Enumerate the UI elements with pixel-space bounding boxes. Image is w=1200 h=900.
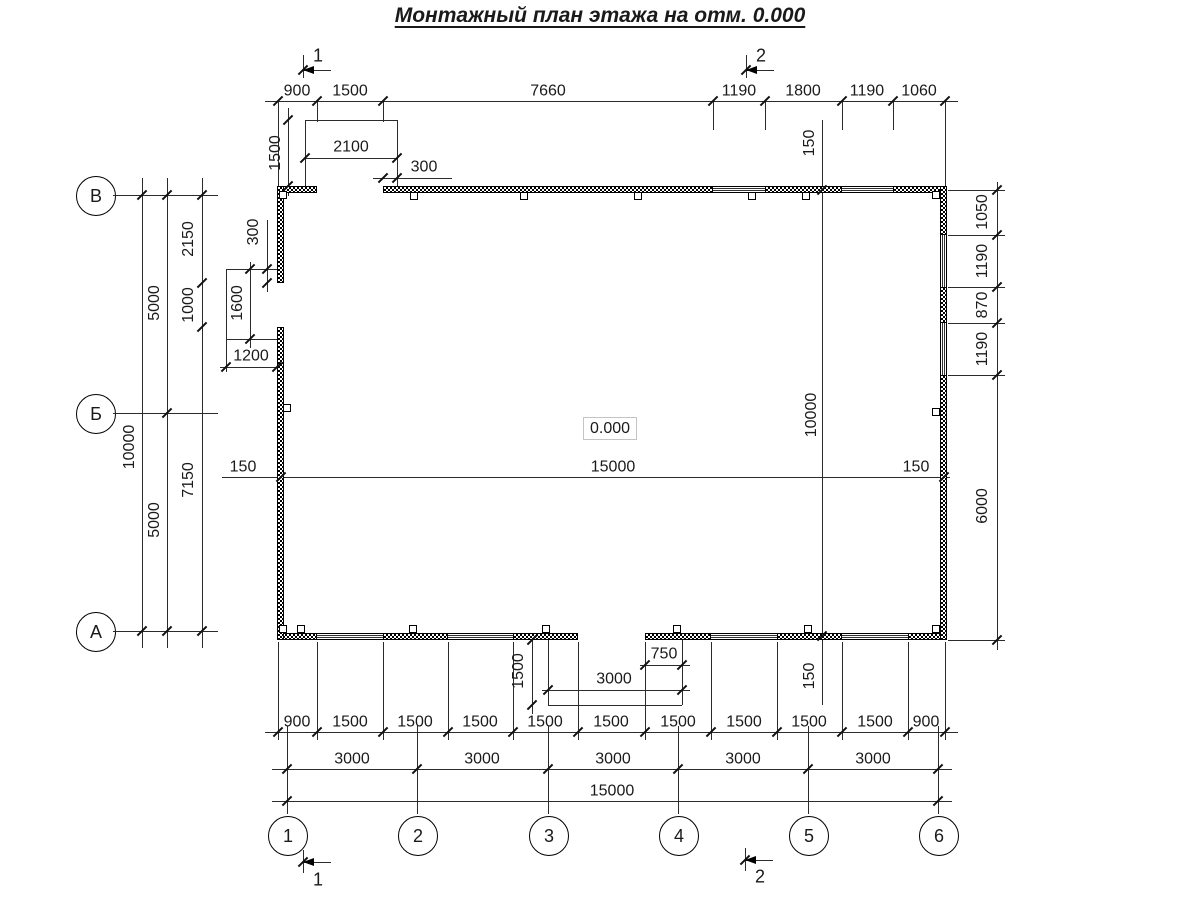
drawing-line — [945, 101, 946, 186]
window-segment — [940, 323, 947, 375]
dimension-label: 1200 — [233, 347, 269, 365]
section-arrow-icon — [303, 858, 314, 866]
dimension-label: 1190 — [850, 82, 884, 100]
drawing-line — [317, 101, 318, 122]
dimension-label: 3000 — [596, 670, 632, 688]
column-marker — [283, 404, 291, 412]
section-arrow-icon — [746, 66, 757, 74]
drawing-line — [822, 120, 823, 705]
dimension-label: 1500 — [857, 713, 893, 731]
axis-col-6: 6 — [919, 816, 959, 856]
axis-row-1-label: В — [90, 186, 102, 207]
elevation-box: 0.000 — [583, 417, 637, 440]
dimension-label: 1500 — [267, 135, 285, 171]
drawing-line — [272, 769, 952, 770]
dimension-label: 1190 — [974, 244, 992, 278]
drawing-line — [226, 269, 227, 339]
column-marker — [279, 191, 287, 199]
column-marker — [932, 191, 940, 199]
drawing-line — [202, 178, 203, 648]
dimension-label: 1000 — [180, 287, 198, 323]
column-marker — [520, 192, 528, 200]
dimension-label: 900 — [284, 82, 311, 100]
axis-row-3-label: А — [90, 622, 102, 643]
dimension-label: 300 — [245, 219, 263, 246]
column-marker — [297, 625, 305, 633]
wall-segment — [277, 186, 284, 283]
dimension-label: 1190 — [722, 82, 756, 100]
wall-segment — [777, 633, 842, 640]
column-marker — [673, 625, 681, 633]
drawing-line — [893, 101, 894, 130]
column-marker — [279, 625, 287, 633]
wall-segment — [277, 327, 284, 640]
dimension-label: 1500 — [332, 713, 368, 731]
axis-col-4-label: 4 — [674, 826, 684, 847]
section-mark-label-top-2: 2 — [756, 46, 766, 67]
drawing-line — [682, 640, 683, 705]
drawing-line — [305, 120, 306, 186]
axis-col-5: 5 — [789, 816, 829, 856]
drawing-line — [278, 642, 279, 740]
axis-row-2-label: Б — [90, 404, 102, 425]
column-marker — [542, 625, 550, 633]
drawing-line — [220, 367, 282, 368]
drawing-line — [373, 178, 452, 179]
wall-segment — [383, 633, 448, 640]
axis-col-4: 4 — [659, 816, 699, 856]
window-segment — [713, 186, 765, 193]
drawing-line — [448, 642, 449, 740]
wall-segment — [513, 633, 578, 640]
drawing-line — [383, 642, 384, 740]
drawing-line — [765, 101, 766, 130]
drawing-line — [548, 705, 682, 706]
drawing-line — [548, 640, 549, 705]
window-segment — [842, 633, 908, 640]
column-marker — [804, 625, 812, 633]
drawing-line — [842, 101, 843, 130]
axis-col-3: 3 — [529, 816, 569, 856]
dimension-label: 300 — [411, 158, 438, 176]
wall-segment — [383, 186, 713, 193]
dimension-label: 1500 — [510, 653, 528, 689]
drawing-line — [908, 642, 909, 740]
dimension-label: 2100 — [333, 138, 369, 156]
dimension-label: 7150 — [180, 462, 198, 498]
dimension-label: 15000 — [591, 458, 636, 476]
axis-row-1: В — [76, 176, 116, 216]
axis-col-5-label: 5 — [804, 826, 814, 847]
window-segment — [842, 186, 893, 193]
drawing-line — [383, 101, 384, 122]
drawing-line — [317, 642, 318, 740]
floor-plan-drawing: Монтажный план этажа на отм. 0.000 В Б А… — [0, 0, 1200, 900]
wall-segment — [940, 287, 947, 323]
column-marker — [932, 408, 940, 416]
wall-segment — [940, 375, 947, 640]
dimension-label: 1600 — [229, 285, 247, 321]
dimension-label: 1500 — [593, 713, 629, 731]
column-marker — [932, 625, 940, 633]
section-mark-label-bottom-2: 2 — [755, 867, 765, 888]
dimension-label: 5000 — [146, 502, 164, 538]
dimension-label: 1060 — [901, 82, 937, 100]
section-arrow-icon — [745, 856, 756, 864]
drawing-line — [222, 477, 950, 478]
drawing-line — [305, 158, 397, 159]
elevation-label: 0.000 — [590, 420, 630, 438]
axis-col-2: 2 — [398, 816, 438, 856]
axis-col-2-label: 2 — [413, 826, 423, 847]
dimension-label: 1500 — [397, 713, 433, 731]
dimension-label: 1500 — [660, 713, 696, 731]
dimension-label: 1050 — [974, 194, 992, 230]
dimension-label: 150 — [903, 458, 930, 476]
dimension-label: 1500 — [791, 713, 827, 731]
dimension-label: 1500 — [527, 713, 563, 731]
axis-col-3-label: 3 — [544, 826, 554, 847]
column-marker — [409, 625, 417, 633]
column-marker — [802, 192, 810, 200]
dimension-label: 1800 — [785, 82, 821, 100]
dimension-label: 6000 — [974, 488, 992, 524]
drawing-line — [226, 339, 277, 340]
dimension-label: 150 — [230, 458, 257, 476]
dimension-label: 10000 — [803, 393, 821, 438]
dimension-label: 1190 — [974, 332, 992, 366]
drawing-line — [578, 642, 579, 740]
dimension-label: 750 — [651, 645, 678, 663]
drawing-line — [265, 732, 958, 733]
drawing-line — [142, 178, 143, 648]
axis-col-1: 1 — [268, 816, 308, 856]
dimension-label: 3000 — [725, 750, 761, 768]
dimension-label: 150 — [801, 130, 819, 157]
dimension-label: 1500 — [462, 713, 498, 731]
drawing-line — [997, 182, 998, 650]
window-segment — [711, 633, 777, 640]
drawing-line — [645, 642, 646, 740]
dimension-label: 2150 — [180, 221, 198, 257]
drawing-line — [777, 642, 778, 740]
drawing-line — [713, 101, 714, 130]
dimension-label: 3000 — [595, 750, 631, 768]
dimension-label: 900 — [284, 713, 311, 731]
drawing-line — [265, 101, 958, 102]
wall-segment — [940, 186, 947, 235]
drawing-line — [842, 642, 843, 740]
dimension-label: 150 — [801, 663, 819, 690]
section-mark-label-bottom-1: 1 — [313, 870, 323, 891]
drawing-line — [226, 269, 277, 270]
section-arrow-icon — [303, 66, 314, 74]
dimension-label: 900 — [913, 713, 940, 731]
window-segment — [317, 633, 383, 640]
drawing-line — [272, 801, 952, 802]
dimension-label: 7660 — [530, 82, 566, 100]
wall-segment — [645, 633, 711, 640]
drawing-title: Монтажный план этажа на отм. 0.000 — [0, 4, 1200, 28]
section-mark-label-top-1: 1 — [313, 46, 323, 67]
dimension-label: 3000 — [464, 750, 500, 768]
dimension-label: 870 — [974, 292, 992, 319]
dimension-label: 1500 — [332, 82, 368, 100]
window-segment — [448, 633, 513, 640]
dimension-label: 1500 — [726, 713, 762, 731]
column-marker — [634, 192, 642, 200]
column-marker — [748, 192, 756, 200]
drawing-line — [542, 690, 690, 691]
dimension-label: 15000 — [590, 782, 635, 800]
drawing-line — [711, 642, 712, 740]
dimension-label: 5000 — [146, 285, 164, 321]
axis-row-3: А — [76, 612, 116, 652]
dimension-label: 10000 — [121, 425, 139, 470]
window-segment — [940, 235, 947, 287]
dimension-label: 3000 — [334, 750, 370, 768]
dimension-label: 3000 — [855, 750, 891, 768]
axis-row-2: Б — [76, 394, 116, 434]
axis-col-1-label: 1 — [283, 826, 293, 847]
drawing-line — [945, 642, 946, 740]
axis-col-6-label: 6 — [934, 826, 944, 847]
column-marker — [410, 192, 418, 200]
